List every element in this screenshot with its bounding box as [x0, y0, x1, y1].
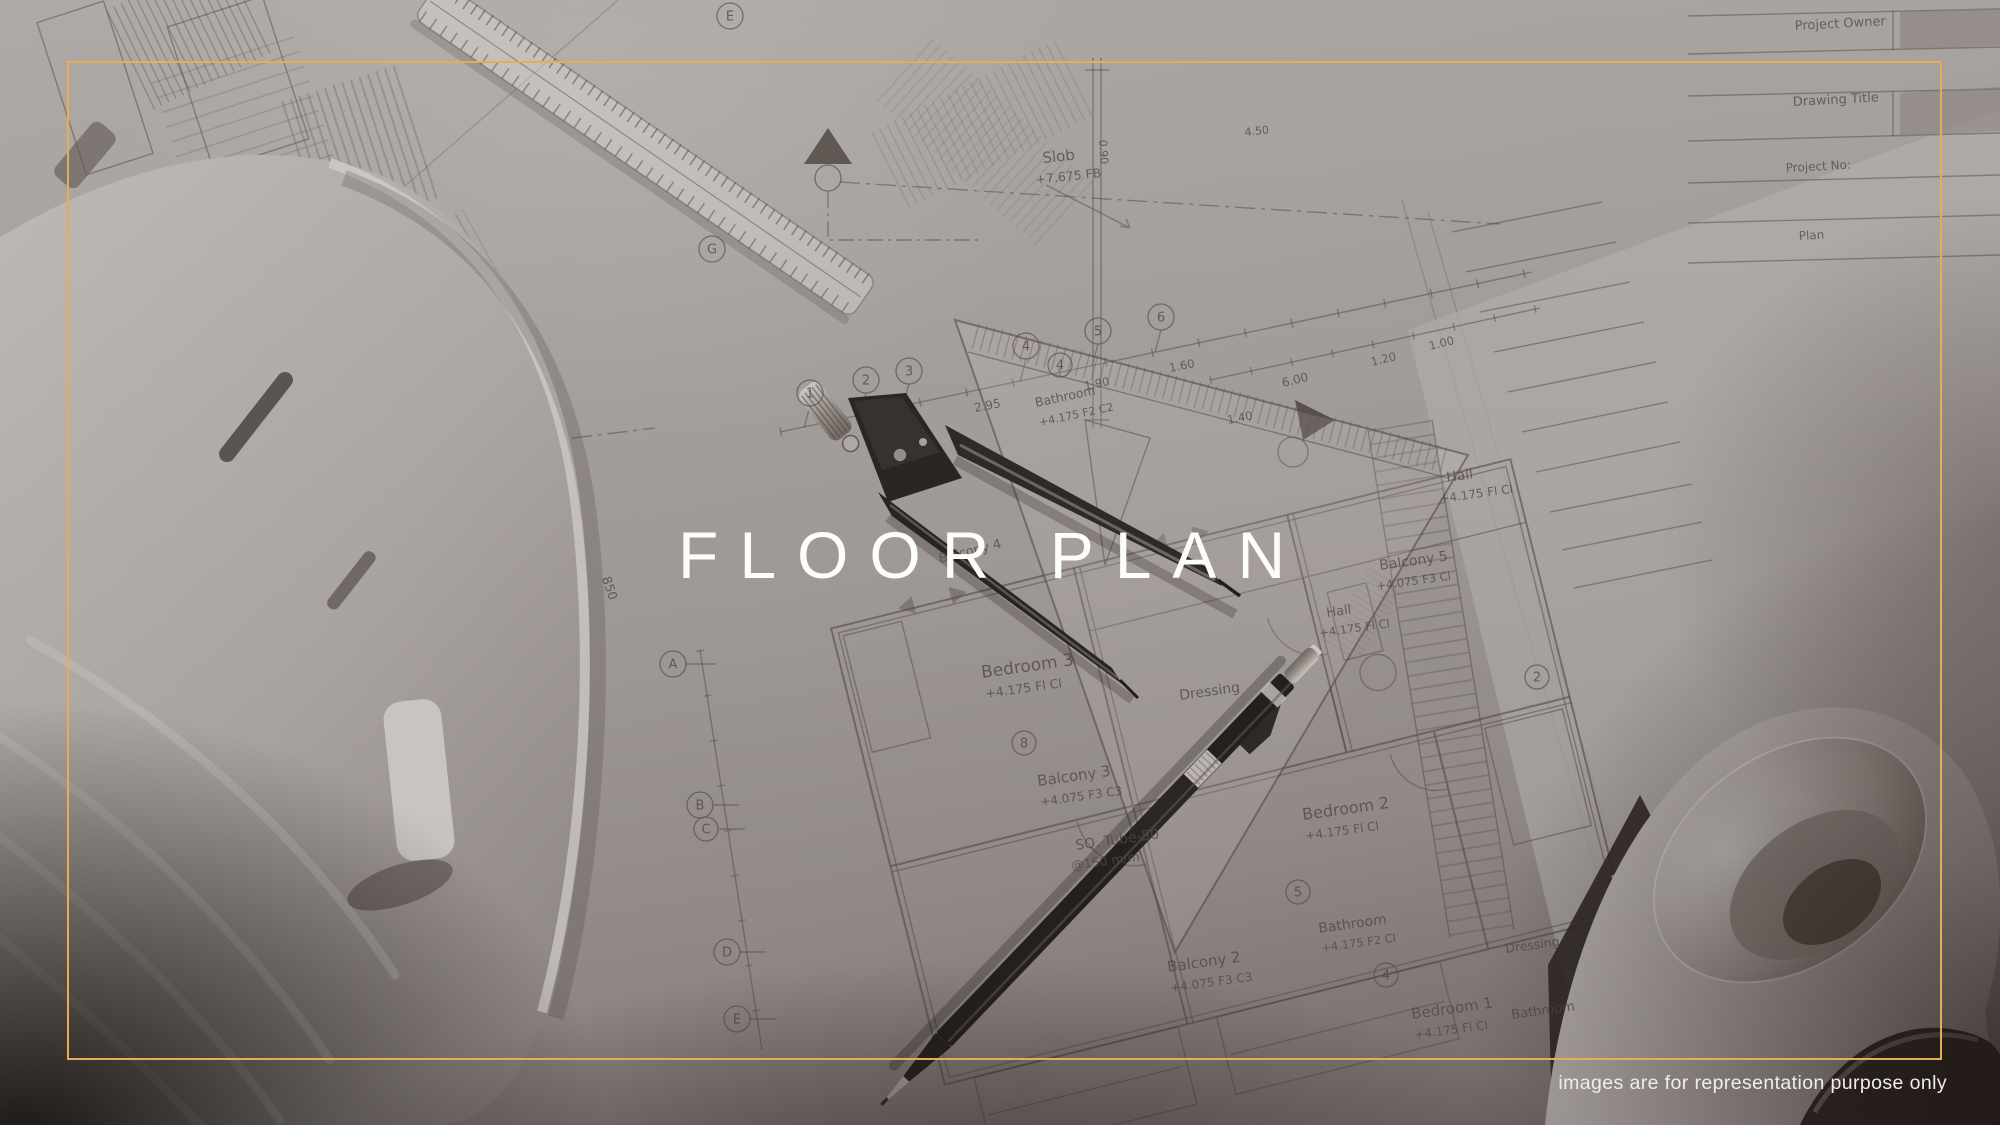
- annotation: +7.675 FB: [1035, 165, 1102, 187]
- grid-bubble: 8: [1020, 737, 1028, 752]
- hard-hat: [0, 119, 598, 1125]
- grid-bubble: 3: [905, 365, 913, 380]
- grid-bubble: B: [696, 799, 705, 814]
- grid-bubble: D: [722, 946, 732, 961]
- titleblock-label: Project Owner: [1794, 14, 1886, 34]
- grid-bubble: 5: [1294, 886, 1302, 901]
- grid-bubble: A: [669, 658, 678, 673]
- dimension-label: 6.00: [1280, 370, 1309, 390]
- grid-bubble: E: [726, 10, 734, 25]
- grid-bubble: 4: [1022, 340, 1030, 355]
- grid-bubble: G: [707, 243, 717, 258]
- dimension-label: 1.60: [1168, 356, 1196, 375]
- titleblock-label: Drawing Title: [1792, 91, 1879, 110]
- grid-bubble: 5: [1094, 325, 1102, 340]
- grid-bubble: 2: [1533, 671, 1541, 686]
- grid-bubble: 2: [862, 374, 870, 389]
- grid-bubble: 1: [806, 387, 814, 402]
- dimension-label: 4.50: [1244, 123, 1270, 138]
- dimension-label: 0.90: [1096, 139, 1111, 164]
- set-square: [955, 320, 1468, 952]
- grid-bubble: 4: [1382, 969, 1390, 984]
- room-elevation: +4.175 Fl Cl: [1304, 819, 1379, 843]
- page-title: FLOOR PLAN: [678, 522, 1306, 588]
- dimension-label: 1.20: [1369, 349, 1397, 369]
- grid-bubble: E: [733, 1013, 741, 1028]
- grid-bubble: C: [701, 823, 710, 838]
- floor-plan-slide: 1 2 3 4 5 6 A B C D E E G 8 5 4 4 2 Bedr…: [0, 0, 2000, 1125]
- grid-bubble: 4: [1056, 359, 1064, 374]
- grid-bubble: 6: [1157, 311, 1165, 326]
- disclaimer-text: images are for representation purpose on…: [1558, 1074, 1947, 1094]
- titleblock-label: Plan: [1798, 228, 1824, 243]
- room-elevation: +4.175 Fl Cl: [1413, 1018, 1488, 1042]
- annotation: Slob: [1042, 146, 1076, 167]
